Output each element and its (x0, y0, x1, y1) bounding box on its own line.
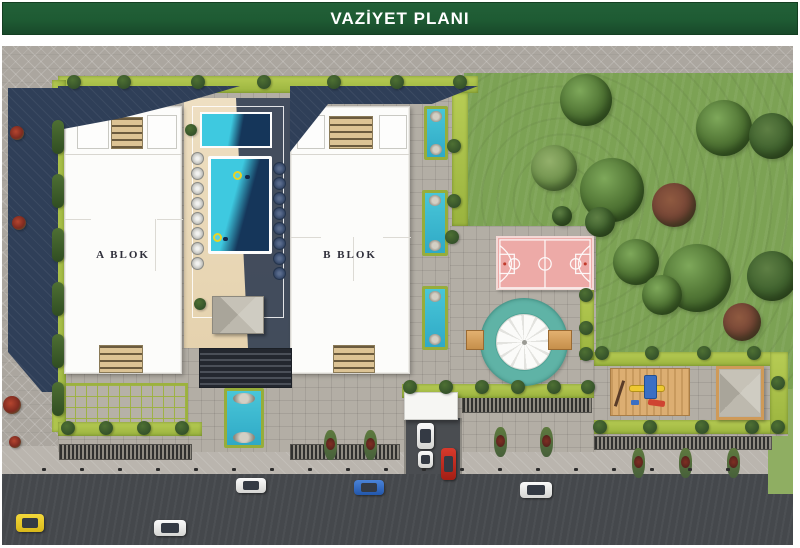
block-a-label: A BLOK (65, 249, 181, 261)
entrance-driveway (404, 418, 462, 474)
roof-seam (383, 237, 411, 238)
court-markings (498, 238, 592, 290)
pergola (329, 116, 373, 149)
bench (466, 330, 484, 350)
play-tower (644, 375, 657, 399)
title-bar: VAZİYET PLANI (2, 2, 798, 35)
hedge-lawn-south (594, 352, 788, 366)
roof-seam (291, 237, 321, 238)
roof-panel (379, 115, 407, 149)
pergola (111, 117, 143, 149)
hedge-court-east (580, 284, 594, 360)
site-plan: A BLOK B BLOK (2, 46, 793, 545)
basketball-court (496, 236, 594, 290)
swimming-pool (208, 156, 272, 254)
page-title: VAZİYET PLANI (330, 9, 469, 29)
building-a: A BLOK (64, 106, 182, 374)
hedge-walkway (452, 93, 468, 226)
gazebo (716, 366, 764, 420)
pergola (99, 345, 143, 373)
hedge-terrace-bottom (594, 420, 788, 434)
pool-float (223, 237, 228, 241)
bench (548, 330, 572, 350)
roof-panel (147, 115, 177, 149)
slide (648, 399, 666, 407)
hedge-terrace-right (770, 352, 788, 434)
pool-float-ring (233, 171, 242, 180)
block-b-label: B BLOK (291, 249, 409, 261)
roof-seam (157, 219, 183, 220)
pergola (333, 345, 375, 373)
pool-float (245, 175, 250, 179)
swing-frame (614, 380, 625, 407)
entrance-canopy (404, 392, 458, 420)
gazebo (212, 296, 264, 334)
pool-float-ring (213, 233, 222, 242)
roof-seam (65, 219, 91, 220)
building-b: B BLOK (290, 106, 410, 374)
kiddie-pool (200, 112, 272, 148)
shade-pergola (199, 348, 292, 388)
hedge-plaza-southwest (58, 422, 202, 436)
roof-seam (155, 219, 156, 271)
playground (610, 368, 690, 416)
road (2, 472, 793, 545)
play-toy (631, 400, 639, 405)
umbrella-canopy (496, 314, 552, 370)
